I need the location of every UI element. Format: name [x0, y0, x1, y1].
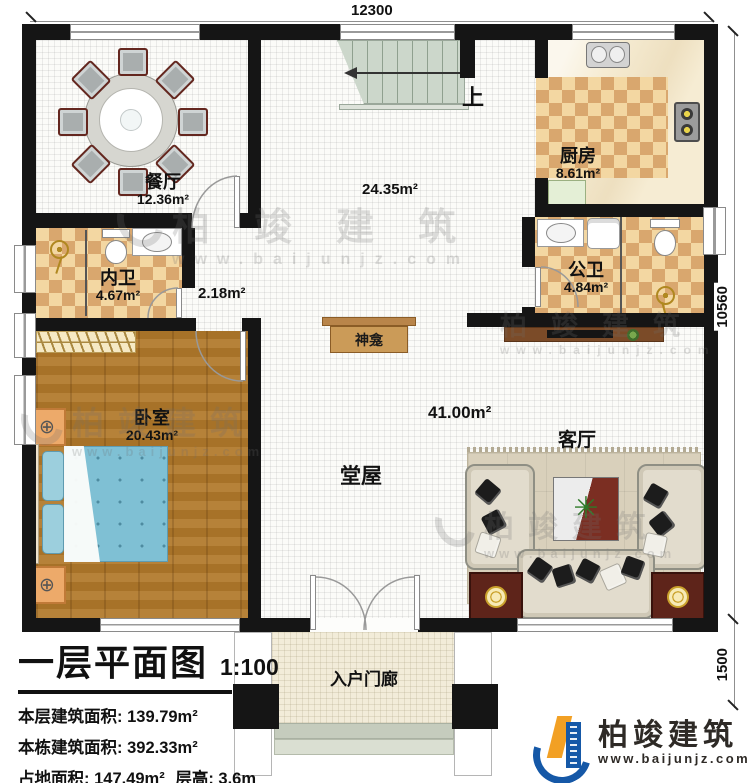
dimension-porch-value: 1500 [714, 645, 731, 684]
hall-area: 41.00m² [428, 403, 491, 423]
room-label-public-bath: 公卫 4.84m² [550, 260, 622, 296]
dining-area: 12.36m² [137, 192, 189, 208]
dining-chair [58, 108, 88, 136]
wall-tv [467, 313, 705, 327]
dimension-right-value: 10560 [714, 283, 731, 331]
brand-url: www.baijunjz.com [598, 751, 750, 766]
brand-logo: 柏竣建筑 www.baijunjz.com [533, 712, 750, 774]
shrine-table-top [322, 317, 416, 326]
wall-bedroom-north [22, 318, 196, 331]
dining-chair [118, 48, 148, 76]
logo-building-blue [566, 722, 581, 768]
dining-name: 餐厅 [145, 172, 181, 192]
table-lamp [485, 586, 507, 608]
plan-title: 一层平面图 [18, 634, 208, 686]
door-leaf-entry-right [414, 575, 420, 630]
wall-innerbath-north [28, 213, 192, 228]
dimension-tick [727, 613, 738, 624]
inner-bath-toilet-tank [102, 229, 130, 238]
pillow [642, 532, 668, 558]
dimension-tick [727, 699, 738, 710]
stat-label: 本栋建筑面积: [18, 739, 123, 757]
room-label-kitchen: 厨房 8.61m² [542, 146, 614, 182]
wardrobe [36, 331, 136, 353]
bed-pillow [42, 451, 64, 501]
shower-head [50, 240, 69, 259]
door-leaf-innerbath [176, 288, 182, 318]
table-lamp [667, 586, 689, 608]
stove-burner [681, 108, 693, 120]
entry-opening [310, 618, 418, 632]
window [100, 618, 240, 632]
inner-bath-toilet-bowl [105, 240, 127, 264]
shrine-table: 神龛 [330, 326, 408, 353]
kitchen-sink-bowl [609, 46, 625, 63]
inner-bath-sink [142, 232, 172, 252]
shrine-label: 神龛 [355, 330, 383, 350]
coffee-table: ✳ [553, 477, 619, 541]
dining-table-center [120, 109, 142, 131]
public-bath-toilet-tank [650, 219, 680, 228]
wall-stair-stub [460, 40, 475, 78]
bedroom-area: 20.43m² [126, 428, 178, 444]
room-label-dining: 餐厅 12.36m² [128, 172, 198, 208]
dimension-tick [727, 25, 738, 36]
wall-bedroom-east [248, 318, 261, 618]
stat-footprint: 占地面积: 147.49m² 层高: 3.6m [18, 765, 318, 783]
room-label-inner-bath: 内卫 4.67m² [82, 268, 154, 304]
window [70, 24, 200, 40]
stat-label: 本层建筑面积: [18, 708, 123, 726]
stat-floor-area: 本层建筑面积: 139.79m² [18, 703, 318, 727]
door-leaf-publicbath [535, 267, 541, 307]
window [703, 207, 726, 255]
door-leaf-dining [234, 176, 240, 228]
kitchen-name: 厨房 [560, 146, 596, 166]
inner-bath-area: 4.67m² [96, 288, 140, 304]
kitchen-sink-bowl [591, 46, 607, 63]
corridor-area: 2.18m² [198, 285, 246, 302]
public-bath-toilet-bowl [654, 230, 676, 256]
wall-dining-east [248, 40, 261, 222]
hall-name: 堂屋 [340, 460, 382, 490]
shower-head [656, 286, 675, 305]
stat-value: 3.6m [218, 770, 256, 783]
hall-upper-area: 24.35m² [362, 181, 418, 198]
stat-label: 占地面积: [18, 770, 90, 783]
stat-label: 层高: [175, 770, 214, 783]
dimension-line-top [30, 21, 712, 22]
stairs-direction-arrow [344, 67, 357, 79]
wall-kitchen-west-upper [535, 40, 548, 78]
wall-publicbath-west-upper [522, 217, 535, 267]
washing-machine [587, 218, 620, 249]
door-leaf-bedroom [240, 331, 246, 381]
public-bath-name: 公卫 [568, 260, 604, 280]
staircase-landing-edge [339, 104, 469, 110]
floor-plan: ⊕ ⊕ 神龛 ✳ [0, 0, 750, 783]
stat-value: 147.49m² [94, 770, 165, 783]
window [340, 24, 455, 40]
stove-burner [681, 124, 693, 136]
window [517, 618, 673, 632]
plan-scale: 1:100 [220, 654, 279, 681]
brand-logo-icon [533, 712, 589, 774]
door-leaf-entry-left [310, 575, 316, 630]
dining-chair [178, 108, 208, 136]
wall-innerbath-north-stub [238, 213, 261, 228]
public-bath-sink [546, 223, 576, 243]
living-name: 客厅 [558, 425, 596, 452]
porch-column-right [452, 684, 498, 729]
stat-value: 392.33m² [127, 739, 198, 757]
brand-name: 柏竣建筑 [598, 720, 750, 752]
plant [627, 329, 639, 341]
inner-bath-name: 内卫 [100, 268, 136, 288]
window [14, 245, 36, 293]
bed-pillow [42, 504, 64, 554]
window [572, 24, 675, 40]
porch-name: 入户门廊 [330, 665, 398, 690]
wall-kitchen-south [535, 204, 705, 217]
kitchen-area: 8.61m² [556, 166, 600, 182]
wall-innerbath-east [182, 228, 195, 288]
dimension-line-right [734, 32, 735, 708]
title-underline [18, 690, 232, 694]
stairs-up-label: 上 [462, 80, 484, 112]
bedroom-name: 卧室 [134, 408, 170, 428]
plant: ✳ [573, 494, 598, 524]
public-bath-area: 4.84m² [564, 280, 608, 296]
stairs-direction-line [356, 72, 462, 74]
room-label-bedroom: 卧室 20.43m² [116, 408, 188, 444]
stat-building-area: 本栋建筑面积: 392.33m² [18, 734, 318, 758]
dimension-top-value: 12300 [348, 2, 396, 19]
title-block: 一层平面图 1:100 本层建筑面积: 139.79m² 本栋建筑面积: 392… [18, 634, 318, 783]
window [14, 313, 36, 358]
stat-value: 139.79m² [127, 708, 198, 726]
tv [547, 330, 613, 338]
window [14, 375, 36, 445]
